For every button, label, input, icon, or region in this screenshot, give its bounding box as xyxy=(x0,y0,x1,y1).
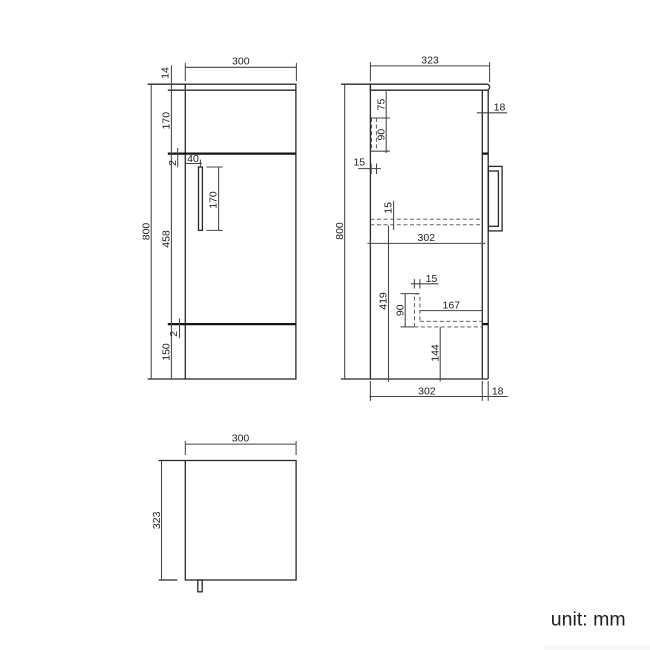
svg-text:15: 15 xyxy=(382,202,394,214)
svg-text:800: 800 xyxy=(140,223,152,241)
svg-text:300: 300 xyxy=(232,433,250,445)
svg-text:419: 419 xyxy=(378,292,390,310)
svg-text:170: 170 xyxy=(208,191,220,209)
svg-text:14: 14 xyxy=(160,67,172,79)
svg-text:15: 15 xyxy=(426,273,438,285)
svg-text:15: 15 xyxy=(353,156,365,168)
svg-text:323: 323 xyxy=(421,54,439,66)
svg-text:302: 302 xyxy=(418,385,436,397)
svg-text:18: 18 xyxy=(492,385,504,397)
svg-text:75: 75 xyxy=(375,99,387,111)
svg-text:458: 458 xyxy=(161,230,173,248)
svg-text:800: 800 xyxy=(334,222,346,240)
svg-text:150: 150 xyxy=(161,343,173,361)
svg-text:2: 2 xyxy=(168,331,180,337)
svg-text:18: 18 xyxy=(494,102,506,114)
svg-text:40: 40 xyxy=(187,153,199,165)
svg-text:300: 300 xyxy=(232,56,250,68)
svg-text:170: 170 xyxy=(161,112,173,130)
svg-text:90: 90 xyxy=(375,129,387,141)
svg-text:2: 2 xyxy=(167,160,179,166)
svg-text:167: 167 xyxy=(443,300,461,312)
svg-text:323: 323 xyxy=(151,511,163,529)
svg-text:90: 90 xyxy=(395,304,407,316)
svg-text:unit: mm: unit: mm xyxy=(551,608,626,630)
svg-text:302: 302 xyxy=(418,232,436,244)
svg-text:144: 144 xyxy=(430,344,442,362)
